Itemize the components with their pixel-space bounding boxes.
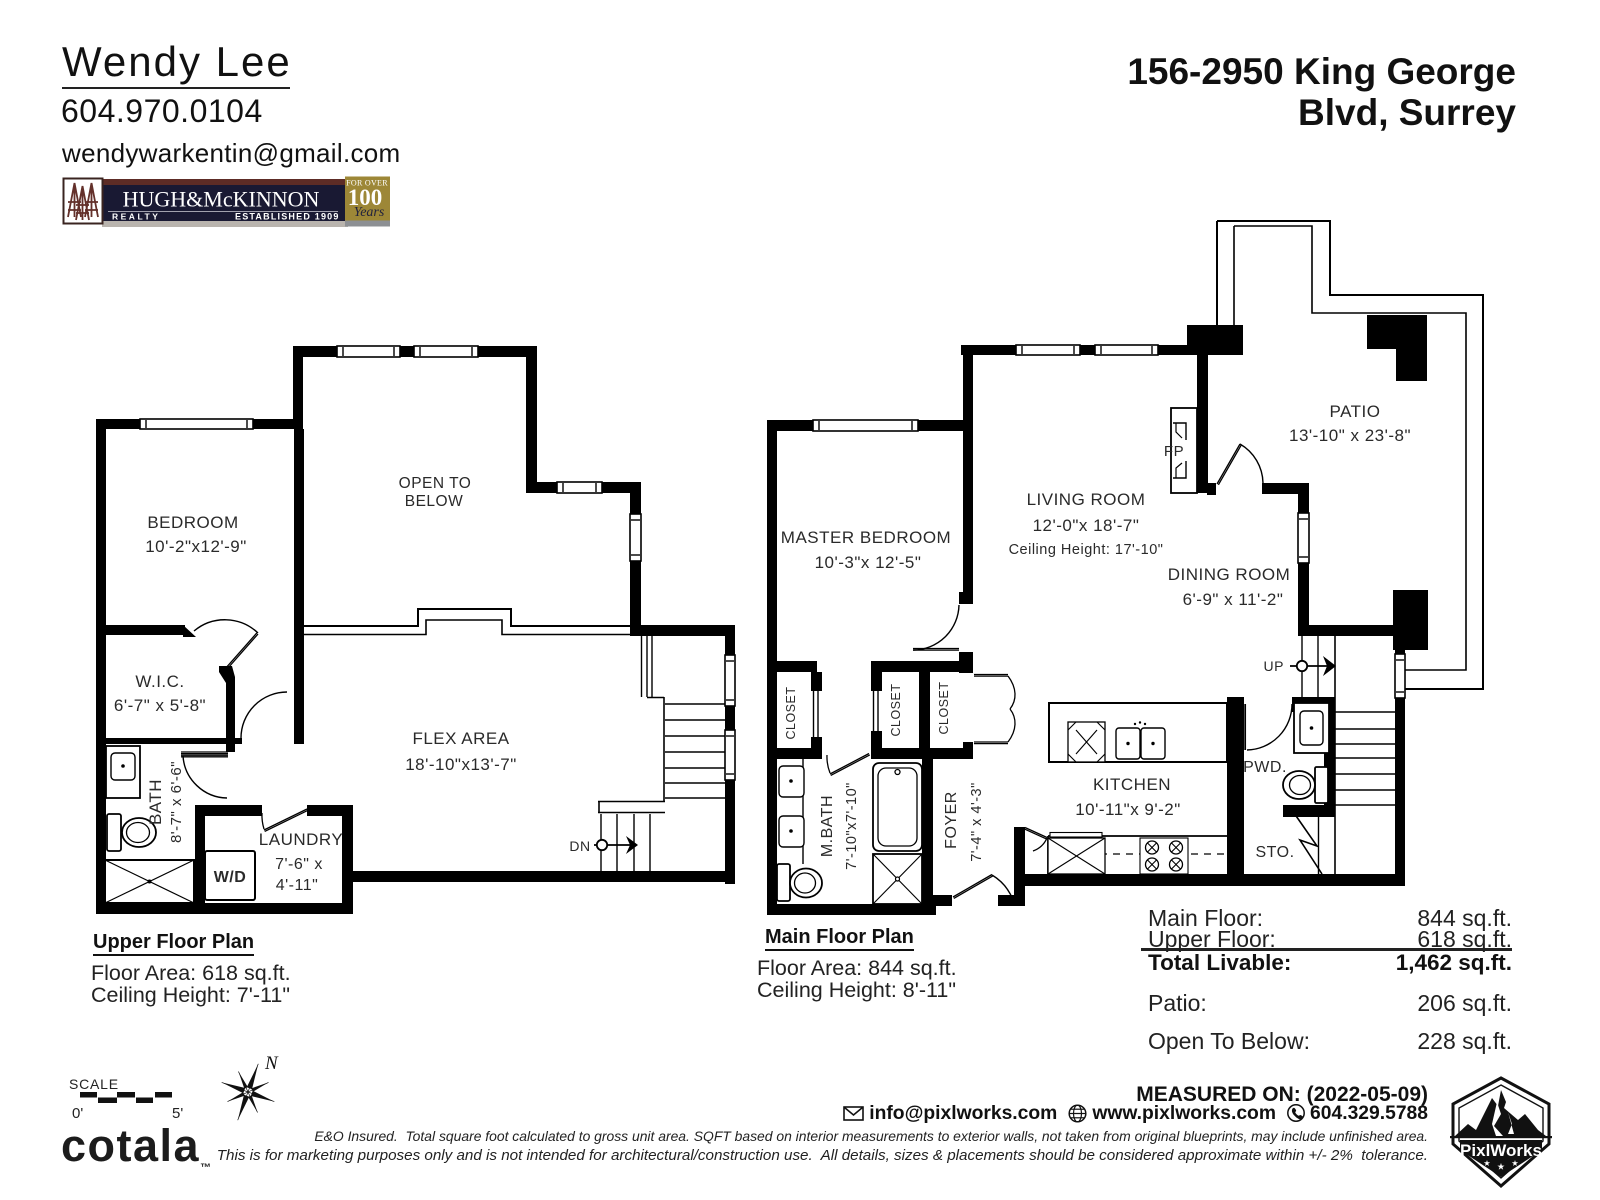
svg-text:7'-6" x: 7'-6" x	[275, 856, 323, 873]
svg-text:N: N	[264, 1055, 279, 1074]
svg-text:M.BATH: M.BATH	[819, 795, 836, 857]
svg-text:LIVING ROOM: LIVING ROOM	[1027, 490, 1146, 509]
svg-text:12'-0"x 18'-7": 12'-0"x 18'-7"	[1033, 516, 1140, 535]
svg-text:STO.: STO.	[1255, 844, 1294, 861]
svg-text:W.I.C.: W.I.C.	[135, 672, 184, 691]
svg-text:CLOSET: CLOSET	[784, 686, 798, 739]
svg-text:6'-9" x 11'-2": 6'-9" x 11'-2"	[1183, 590, 1284, 609]
svg-text:KITCHEN: KITCHEN	[1093, 775, 1171, 794]
svg-text:0': 0'	[72, 1105, 83, 1120]
svg-text:DINING ROOM: DINING ROOM	[1168, 565, 1291, 584]
svg-text:PixlWorks: PixlWorks	[1460, 1141, 1542, 1160]
svg-text:BATH: BATH	[146, 779, 165, 825]
svg-text:5': 5'	[172, 1105, 183, 1120]
svg-text:Ceiling Height: 17'-10": Ceiling Height: 17'-10"	[1009, 542, 1164, 558]
svg-text:FLEX AREA: FLEX AREA	[412, 729, 509, 748]
svg-text:CLOSET: CLOSET	[889, 683, 903, 736]
svg-text:10'-3"x 12'-5": 10'-3"x 12'-5"	[815, 553, 922, 572]
svg-text:6'-7" x 5'-8": 6'-7" x 5'-8"	[114, 696, 206, 715]
svg-text:OPEN TO: OPEN TO	[399, 475, 472, 492]
svg-text:10'-2"x12'-9": 10'-2"x12'-9"	[145, 537, 247, 556]
svg-text:PWD.: PWD.	[1243, 759, 1287, 776]
svg-text:CLOSET: CLOSET	[937, 681, 951, 734]
svg-text:13'-10" x 23'-8": 13'-10" x 23'-8"	[1289, 426, 1411, 445]
svg-text:7'-10"x7'-10": 7'-10"x7'-10"	[844, 782, 860, 870]
svg-text:MASTER BEDROOM: MASTER BEDROOM	[781, 528, 951, 547]
svg-text:UP: UP	[1264, 658, 1284, 674]
svg-text:10'-11"x 9'-2": 10'-11"x 9'-2"	[1075, 800, 1181, 819]
svg-text:18'-10"x13'-7": 18'-10"x13'-7"	[405, 755, 517, 774]
svg-text:4'-11": 4'-11"	[276, 877, 319, 894]
svg-text:FOYER: FOYER	[943, 791, 960, 849]
svg-text:FP: FP	[1164, 443, 1184, 460]
svg-text:PATIO: PATIO	[1330, 402, 1381, 421]
svg-text:BEDROOM: BEDROOM	[147, 513, 238, 532]
svg-text:W/D: W/D	[214, 869, 247, 886]
svg-text:LAUNDRY: LAUNDRY	[259, 830, 343, 849]
svg-text:8'-7" x 6'-6": 8'-7" x 6'-6"	[168, 761, 185, 843]
svg-text:BELOW: BELOW	[405, 493, 463, 510]
svg-text:DN: DN	[569, 838, 590, 854]
svg-text:7'-4" x 4'-3": 7'-4" x 4'-3"	[969, 782, 985, 862]
